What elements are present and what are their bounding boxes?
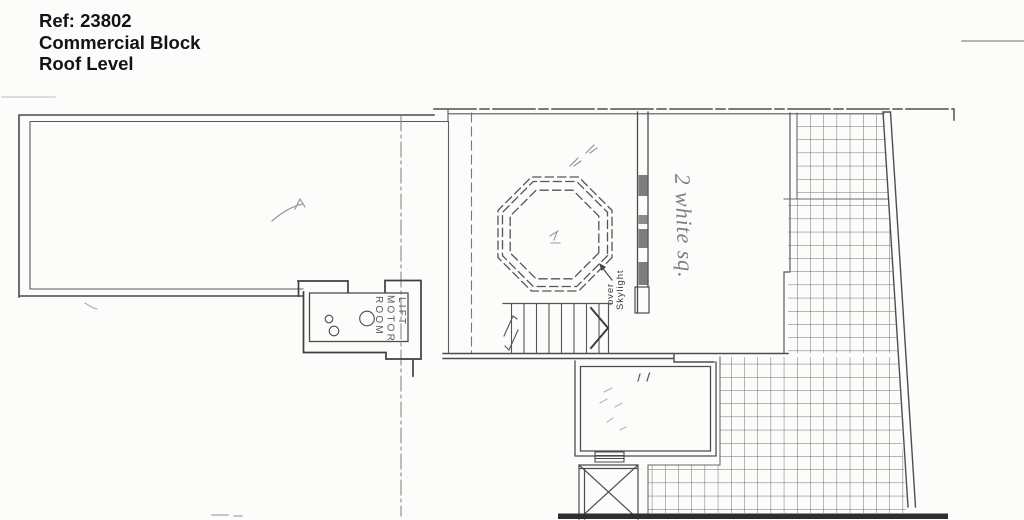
- svg-text:Skylight: Skylight: [615, 270, 626, 310]
- svg-text:over: over: [605, 283, 616, 305]
- svg-text:LIFT: LIFT: [396, 297, 407, 326]
- svg-text:ROOM: ROOM: [373, 296, 384, 336]
- svg-text:2 white sq.: 2 white sq.: [670, 173, 699, 278]
- svg-text:MOTOR: MOTOR: [385, 295, 396, 343]
